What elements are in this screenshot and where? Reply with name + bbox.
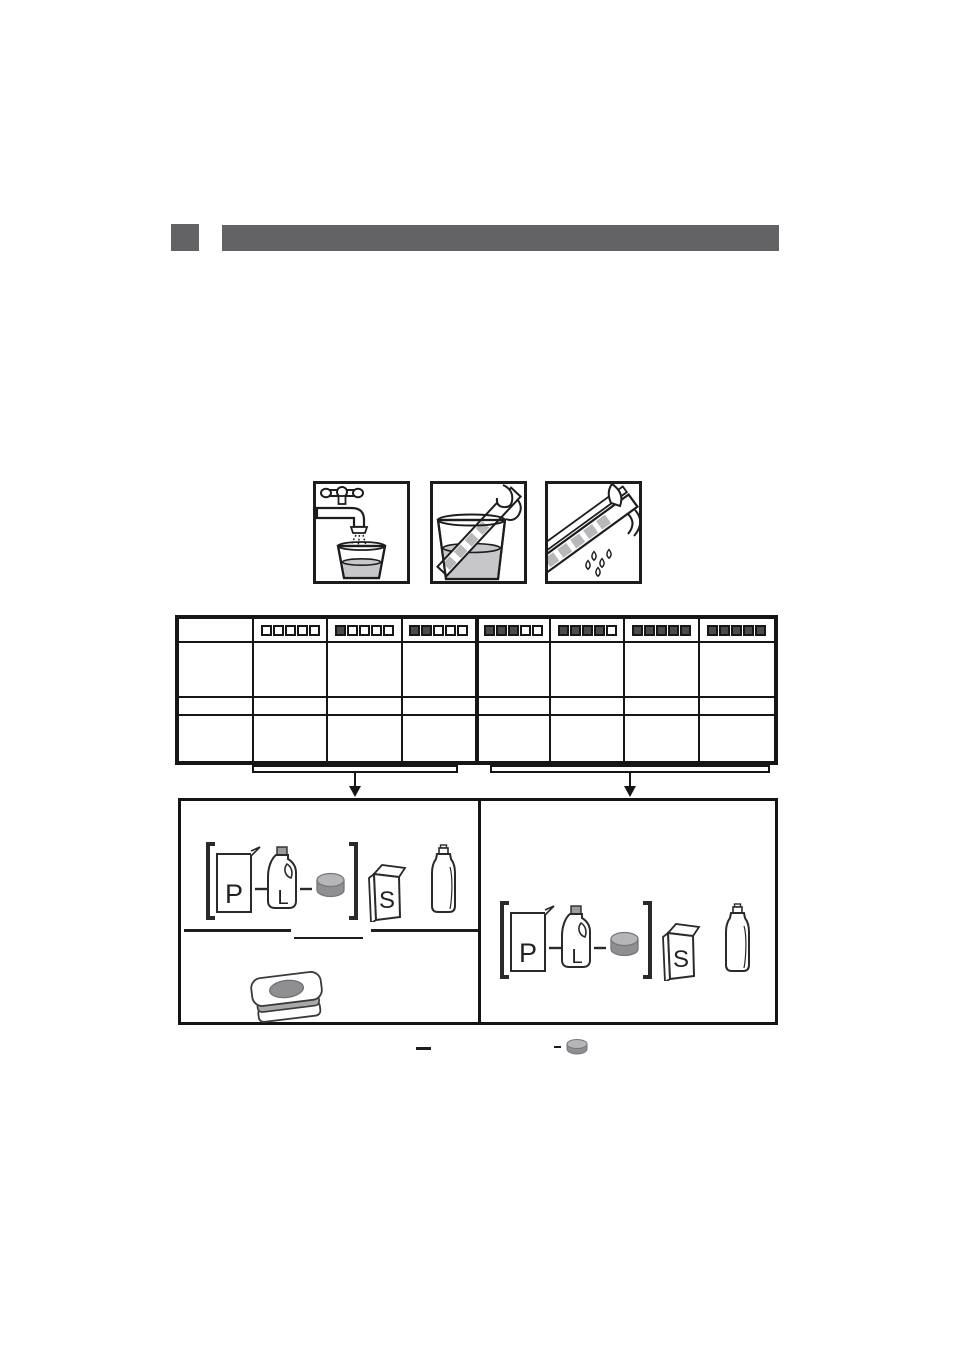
results-panel: P L S bbox=[178, 798, 778, 1025]
bracket-open-icon bbox=[502, 903, 509, 977]
rinse-aid-bottle-icon bbox=[432, 845, 455, 912]
table-cell bbox=[551, 716, 625, 761]
legend-tablet-dash bbox=[554, 1046, 561, 1048]
strip-square-empty bbox=[297, 625, 308, 636]
strip-square-filled bbox=[496, 625, 507, 636]
strip-square-empty bbox=[261, 625, 272, 636]
strip-square-filled bbox=[680, 625, 691, 636]
powder-detergent-icon: P bbox=[217, 847, 260, 912]
strip-square-filled bbox=[409, 625, 420, 636]
powder-label: P bbox=[225, 879, 243, 909]
rinse-aid-bottle-icon bbox=[726, 904, 749, 971]
salt-box-icon: S bbox=[663, 924, 699, 981]
powder-label: P bbox=[519, 938, 537, 968]
section-marker bbox=[171, 224, 199, 251]
bracket-close-icon bbox=[349, 844, 356, 918]
detergent-tablet-icon bbox=[611, 933, 638, 956]
table-cell bbox=[551, 643, 625, 698]
arrow-down-right-head bbox=[624, 786, 636, 797]
table-cell bbox=[477, 698, 551, 716]
test-strip-shake-dry-icon bbox=[548, 484, 639, 581]
table-cell bbox=[700, 698, 774, 716]
group-bracket-left bbox=[252, 765, 458, 773]
table-cell bbox=[254, 643, 328, 698]
strip-square-filled bbox=[644, 625, 655, 636]
strip-square-empty bbox=[532, 625, 543, 636]
strip-pattern-6 bbox=[700, 619, 774, 643]
table-cell bbox=[254, 716, 328, 761]
detergent-tablet-icon bbox=[317, 874, 344, 897]
group-bracket-right bbox=[490, 765, 770, 773]
strip-square-filled bbox=[594, 625, 605, 636]
table-cell bbox=[700, 716, 774, 761]
strip-square-filled bbox=[755, 625, 766, 636]
detergent-group-right: P L S bbox=[497, 899, 755, 981]
strip-pattern-1 bbox=[328, 619, 402, 643]
strip-square-filled bbox=[743, 625, 754, 636]
bracket-open-icon bbox=[208, 844, 215, 918]
strip-square-filled bbox=[656, 625, 667, 636]
hardness-table bbox=[175, 615, 778, 765]
strip-square-empty bbox=[347, 625, 358, 636]
table-cell bbox=[625, 643, 699, 698]
strip-pattern-3 bbox=[477, 619, 551, 643]
section-title-bar bbox=[222, 225, 779, 251]
strip-square-empty bbox=[309, 625, 320, 636]
strip-square-filled bbox=[558, 625, 569, 636]
liquid-detergent-icon: L bbox=[562, 906, 590, 968]
strip-square-filled bbox=[632, 625, 643, 636]
table-cell bbox=[328, 716, 402, 761]
detergent-tablet-icon bbox=[565, 1037, 589, 1056]
strip-square-filled bbox=[570, 625, 581, 636]
detergent-group-left: P L S bbox=[203, 840, 461, 922]
strip-square-filled bbox=[668, 625, 679, 636]
table-cell bbox=[179, 643, 254, 698]
liquid-label: L bbox=[277, 887, 288, 909]
liquid-detergent-icon: L bbox=[268, 847, 296, 909]
strip-square-filled bbox=[582, 625, 593, 636]
tap-filling-glass-icon bbox=[316, 484, 407, 581]
strip-square-filled bbox=[484, 625, 495, 636]
arrow-down-left-head bbox=[349, 786, 361, 797]
table-cell bbox=[477, 716, 551, 761]
strip-square-filled bbox=[731, 625, 742, 636]
strip-square-empty bbox=[359, 625, 370, 636]
table-cell bbox=[254, 698, 328, 716]
arrow-down-right bbox=[629, 773, 631, 786]
strip-square-empty bbox=[383, 625, 394, 636]
strip-pattern-2 bbox=[403, 619, 477, 643]
strip-square-empty bbox=[445, 625, 456, 636]
strip-square-filled bbox=[707, 625, 718, 636]
strip-square-empty bbox=[520, 625, 531, 636]
table-cell bbox=[403, 716, 477, 761]
table-cell bbox=[403, 698, 477, 716]
strip-square-empty bbox=[606, 625, 617, 636]
strip-square-filled bbox=[421, 625, 432, 636]
strip-pattern-0 bbox=[254, 619, 328, 643]
left-box-divider-segment bbox=[184, 929, 291, 932]
liquid-label: L bbox=[571, 946, 582, 968]
strip-pattern-5 bbox=[625, 619, 699, 643]
table-cell bbox=[625, 716, 699, 761]
multi-function-tablet-icon bbox=[243, 969, 331, 1029]
arrow-down-left bbox=[354, 773, 356, 786]
table-cell bbox=[328, 698, 402, 716]
salt-label: S bbox=[673, 946, 689, 973]
test-strip-dipped-in-glass-icon bbox=[433, 484, 524, 581]
strip-square-filled bbox=[335, 625, 346, 636]
powder-detergent-icon: P bbox=[511, 906, 554, 971]
left-box-divider-underline bbox=[294, 937, 363, 939]
table-cell bbox=[403, 643, 477, 698]
strip-square-empty bbox=[285, 625, 296, 636]
left-box-divider-segment bbox=[371, 929, 478, 932]
strip-square-empty bbox=[273, 625, 284, 636]
results-divider bbox=[478, 801, 481, 1022]
table-cell bbox=[179, 716, 254, 761]
strip-pattern-4 bbox=[551, 619, 625, 643]
step-fill-glass-box bbox=[313, 481, 410, 584]
table-cell bbox=[179, 698, 254, 716]
manual-page: P L S bbox=[0, 0, 954, 1350]
bracket-close-icon bbox=[643, 903, 650, 977]
strip-square-filled bbox=[508, 625, 519, 636]
step-shake-strip-box bbox=[545, 481, 642, 584]
step-dip-strip-box bbox=[430, 481, 527, 584]
legend-dash-symbol bbox=[416, 1047, 431, 1050]
table-cell bbox=[477, 643, 551, 698]
salt-label: S bbox=[379, 887, 395, 914]
strip-square-empty bbox=[433, 625, 444, 636]
salt-box-icon: S bbox=[369, 865, 405, 922]
table-label-cell bbox=[179, 619, 254, 643]
table-cell bbox=[625, 698, 699, 716]
table-cell bbox=[700, 643, 774, 698]
strip-square-empty bbox=[457, 625, 468, 636]
strip-square-filled bbox=[719, 625, 730, 636]
table-cell bbox=[328, 643, 402, 698]
table-cell bbox=[551, 698, 625, 716]
strip-square-empty bbox=[371, 625, 382, 636]
